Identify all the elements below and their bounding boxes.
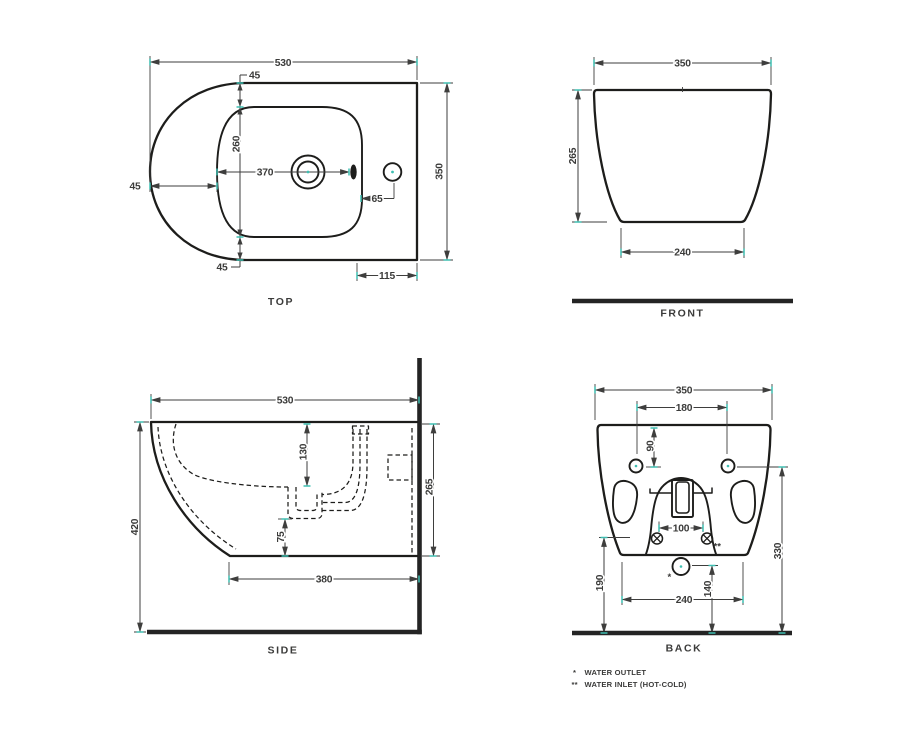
dimension-ticks bbox=[137, 397, 437, 633]
dim-top-deck-length: 115 bbox=[379, 271, 395, 282]
water-inlet-cross-right bbox=[703, 535, 711, 543]
back-view: ** * 350 180 90 100 330 190 140 240 bbox=[572, 384, 793, 689]
dim-side-sump-clearance: 75 bbox=[276, 531, 287, 543]
dim-top-overall-depth: 350 bbox=[435, 163, 446, 180]
hidden-rear-channel-1 bbox=[322, 429, 353, 495]
drain-slot-outer bbox=[672, 480, 693, 517]
front-view: 350 265 240 FRONT bbox=[568, 57, 793, 320]
center-mark bbox=[635, 465, 638, 468]
dim-back-drain-slot-width: 100 bbox=[673, 524, 690, 535]
technical-drawing-sheet: 530 45 260 45 370 45 65 350 115 TOP bbox=[0, 0, 911, 729]
hidden-rear-channel-2 bbox=[322, 429, 360, 503]
dim-top-tap-from-front: 370 bbox=[257, 168, 274, 179]
dim-front-overall-height: 265 bbox=[568, 147, 579, 164]
hidden-inner-shell bbox=[158, 427, 236, 549]
view-title-front: FRONT bbox=[660, 308, 704, 320]
dimension-ticks bbox=[150, 59, 451, 280]
dim-back-inlet-height: 190 bbox=[595, 574, 606, 591]
top-view: 530 45 260 45 370 45 65 350 115 TOP bbox=[129, 56, 453, 308]
dim-back-overall-width: 350 bbox=[676, 386, 693, 397]
view-title-top: TOP bbox=[268, 296, 294, 308]
dim-top-overall-width: 530 bbox=[275, 58, 292, 69]
water-inlet-cross-left bbox=[653, 535, 661, 543]
dim-side-base-depth: 380 bbox=[316, 575, 333, 586]
dim-top-side-hole-offset: 65 bbox=[371, 194, 383, 205]
legend: * WATER OUTLET ** WATER INLET (HOT-COLD) bbox=[572, 668, 687, 689]
front-body-contour bbox=[594, 90, 771, 222]
view-title-side: SIDE bbox=[268, 645, 299, 657]
outlet-marker: * bbox=[668, 572, 672, 583]
dim-side-overall-depth: 530 bbox=[277, 396, 294, 407]
drain-slot-inner bbox=[676, 482, 689, 513]
mounting-recess-right bbox=[731, 481, 755, 523]
mounting-recess-left bbox=[613, 481, 637, 523]
dim-top-rim-top: 45 bbox=[249, 71, 261, 82]
dim-side-body-height: 265 bbox=[425, 478, 436, 495]
view-title-back: BACK bbox=[666, 643, 703, 655]
overflow-slot bbox=[350, 165, 356, 180]
center-mark bbox=[680, 565, 683, 568]
dim-back-fixing-holes-span: 180 bbox=[676, 403, 693, 414]
hidden-inlet-box bbox=[388, 455, 412, 480]
dim-front-base-width: 240 bbox=[674, 248, 691, 259]
dim-back-fixing-holes-height: 330 bbox=[773, 542, 784, 559]
dim-back-fixing-holes-drop: 90 bbox=[646, 440, 657, 452]
dim-front-overall-width: 350 bbox=[674, 59, 691, 70]
dim-side-overall-height: 420 bbox=[130, 518, 141, 535]
dim-top-bowl-depth: 260 bbox=[232, 135, 243, 152]
dim-back-outlet-height: 140 bbox=[703, 580, 714, 597]
hidden-sump-inner bbox=[296, 487, 317, 511]
drain-arch bbox=[646, 478, 716, 554]
center-mark bbox=[727, 465, 730, 468]
center-mark bbox=[307, 171, 310, 174]
legend-outlet-label: WATER OUTLET bbox=[585, 668, 647, 677]
side-view: 530 130 265 75 420 380 SIDE bbox=[130, 358, 440, 657]
inlet-marker: ** bbox=[714, 542, 722, 553]
dim-top-rim-bottom: 45 bbox=[216, 263, 228, 274]
legend-inlet-marker: ** bbox=[572, 680, 578, 689]
center-mark bbox=[391, 171, 394, 174]
legend-inlet-label: WATER INLET (HOT-COLD) bbox=[585, 680, 687, 689]
hidden-bowl-surface bbox=[173, 424, 288, 487]
bidet-technical-drawing: 530 45 260 45 370 45 65 350 115 TOP bbox=[0, 0, 911, 729]
dim-side-bowl-depth: 130 bbox=[299, 443, 310, 460]
dim-top-rim-left: 45 bbox=[129, 182, 141, 193]
back-body-contour bbox=[598, 425, 771, 555]
dim-back-base-width: 240 bbox=[676, 595, 693, 606]
legend-outlet-marker: * bbox=[573, 668, 576, 677]
